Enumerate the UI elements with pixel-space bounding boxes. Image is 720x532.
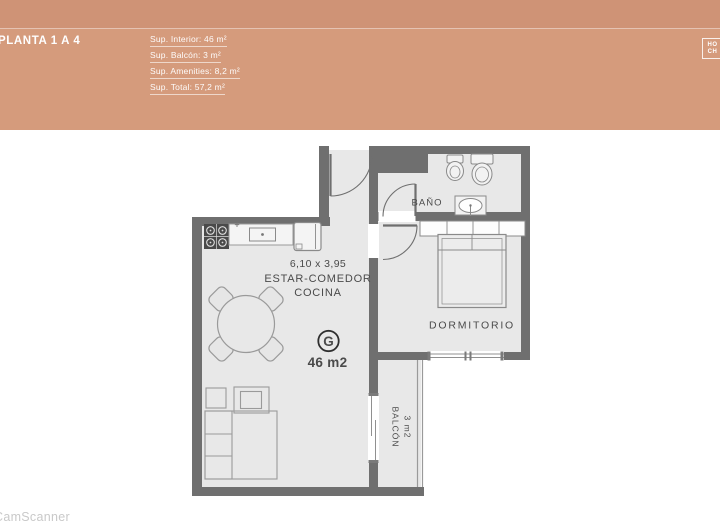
wall-right — [521, 146, 530, 360]
wardrobe — [420, 221, 525, 236]
living-room-label: ESTAR-COMEDOR — [264, 273, 371, 285]
sink-drain — [261, 233, 264, 236]
wall-bathroom-top — [428, 146, 530, 154]
vanity-drain — [469, 204, 471, 206]
floorplan-drawing: BAÑO DORMITORIO 6,10 x 3,95 ESTAR-COMEDO… — [0, 0, 720, 532]
fridge — [294, 223, 321, 251]
dining-table — [218, 296, 275, 353]
entry-hall-floor — [328, 150, 370, 230]
kitchen-label: COCINA — [294, 287, 342, 299]
wall-shaft-block — [369, 146, 428, 173]
wall-bottom — [192, 487, 424, 496]
balcony-area-label: 3 m2 — [403, 416, 413, 439]
balcony-slider-opening — [368, 394, 379, 462]
bathroom-door-opening — [379, 211, 416, 222]
wall-left — [192, 217, 202, 496]
unit-area-label: 46 m2 — [308, 355, 348, 370]
kitchen-counter — [229, 224, 293, 245]
bedroom-door-opening — [368, 224, 379, 258]
wall-entry-stub — [319, 146, 329, 226]
living-dimensions-label: 6,10 x 3,95 — [290, 258, 346, 270]
unit-letter: G — [323, 334, 334, 349]
bathroom-label: BAÑO — [412, 198, 443, 209]
scanned-floorplan-page: PLANTA 1 A 4 Sup. Interior: 46 m² Sup. B… — [0, 0, 720, 532]
bedroom-label: DORMITORIO — [429, 320, 515, 332]
dining-set — [207, 285, 285, 363]
balcony-label: BALCÓN — [391, 407, 401, 448]
camscanner-watermark: CamScanner — [0, 510, 70, 524]
